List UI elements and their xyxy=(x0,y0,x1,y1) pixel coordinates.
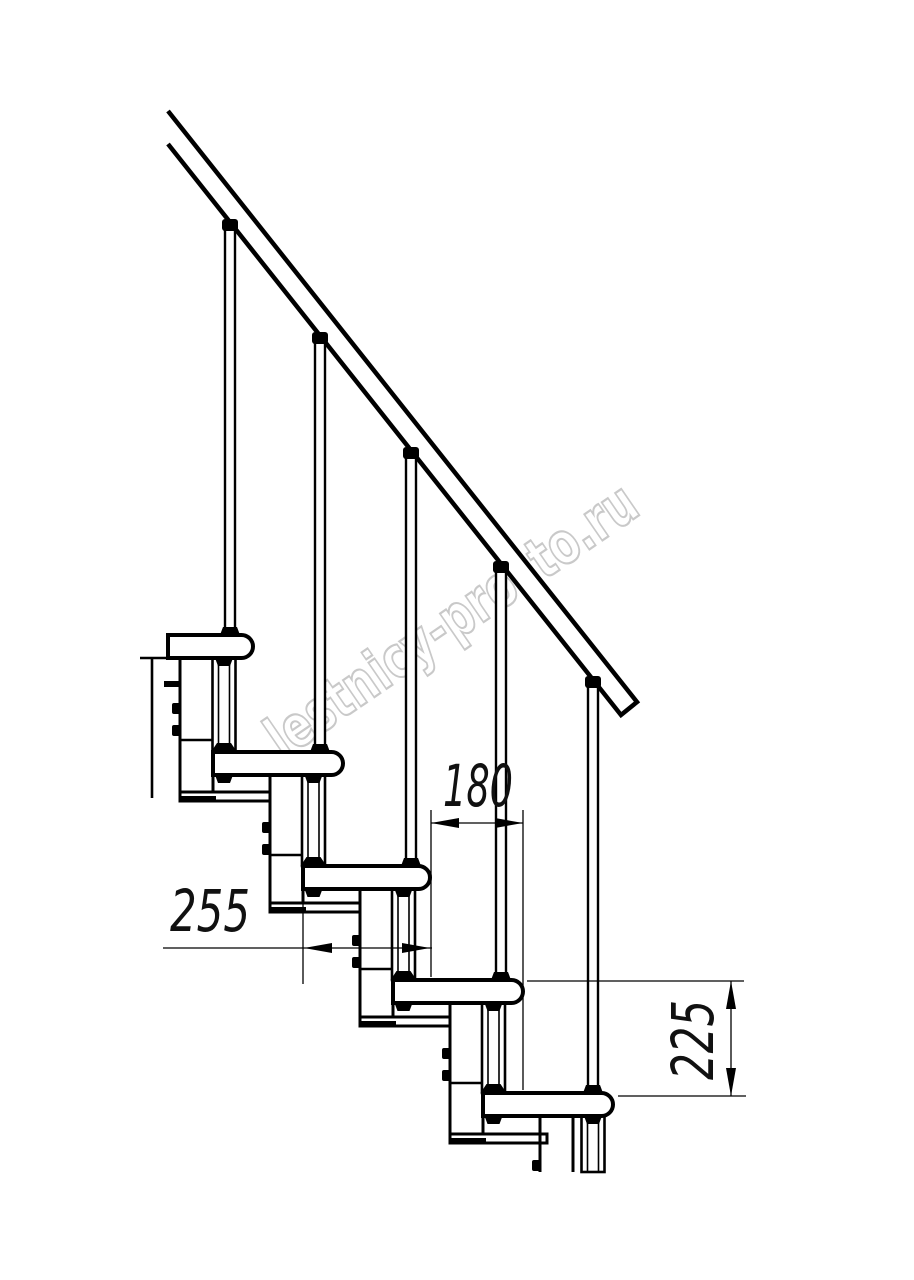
dimension-label-tread-depth: 255 xyxy=(170,877,250,945)
module-remnant-lines xyxy=(140,658,168,798)
tread-3 xyxy=(303,866,430,889)
column-body xyxy=(213,658,236,752)
staircase-technical-drawing: lestnicy-prosto.ru xyxy=(0,0,914,1280)
tread-4 xyxy=(393,980,523,1003)
bolt-tab-icon xyxy=(442,1048,451,1059)
support-column-5 xyxy=(582,1116,605,1172)
arrow-up-icon xyxy=(726,981,736,1009)
arrow-down-icon xyxy=(726,1068,736,1096)
module-box xyxy=(360,887,393,1017)
column-body xyxy=(582,1116,605,1172)
column-flange xyxy=(305,775,323,783)
bolt-tab-icon xyxy=(442,1070,451,1081)
column-body xyxy=(482,1003,505,1093)
bolt-nut-icon xyxy=(395,1003,413,1011)
bolt-tab-icon xyxy=(262,822,271,833)
column-flange xyxy=(395,889,413,897)
bolt-tab-icon xyxy=(172,703,181,714)
support-column-4 xyxy=(481,1003,507,1093)
dimension-step-rise: 225 xyxy=(527,981,746,1096)
bolt-tab-icon xyxy=(164,681,180,687)
bolt-tab-icon xyxy=(262,844,271,855)
bolt-tab-icon xyxy=(352,957,361,968)
support-column-1 xyxy=(211,658,237,752)
baluster-collar xyxy=(222,219,238,231)
column-body xyxy=(302,775,325,866)
drawing-canvas: lestnicy-prosto.ru xyxy=(0,0,914,1280)
bolt-tab-icon xyxy=(172,725,181,736)
bolt-nut-icon xyxy=(215,775,233,783)
bolt-nut-icon xyxy=(305,889,323,897)
baluster-collar xyxy=(312,332,328,344)
module-base-plate-edge xyxy=(450,1138,486,1143)
module-base-plate-edge xyxy=(270,907,306,912)
column-flange xyxy=(215,658,233,666)
column-body xyxy=(392,889,415,980)
baluster-post xyxy=(225,222,235,640)
dimension-label-step-rise: 225 xyxy=(659,1000,727,1080)
module-box xyxy=(270,773,303,903)
bolt-nut-icon xyxy=(485,1116,503,1124)
tread-5 xyxy=(483,1093,613,1116)
bolt-tab-icon xyxy=(532,1160,541,1171)
module-box xyxy=(180,656,213,792)
baluster-collar xyxy=(403,447,419,459)
module-base-plate-edge xyxy=(360,1021,396,1026)
baluster-post xyxy=(406,450,416,871)
tread-1 xyxy=(168,635,253,658)
support-column-2 xyxy=(301,775,327,866)
column-flange xyxy=(485,1003,503,1011)
baluster-collar xyxy=(493,561,509,573)
arrow-left-icon xyxy=(304,943,332,953)
baluster-post xyxy=(588,679,598,1098)
baluster-1 xyxy=(220,222,240,640)
baluster-collar xyxy=(585,676,601,688)
column-flange xyxy=(584,1116,602,1124)
tread-2 xyxy=(213,752,343,775)
module-base-plate-edge xyxy=(180,796,216,801)
bolt-tab-icon xyxy=(352,935,361,946)
baluster-5 xyxy=(583,679,603,1098)
dimension-label-step-run: 180 xyxy=(443,752,513,820)
module-box xyxy=(450,1001,483,1134)
support-column-3 xyxy=(391,889,417,980)
baluster-post xyxy=(315,335,325,757)
